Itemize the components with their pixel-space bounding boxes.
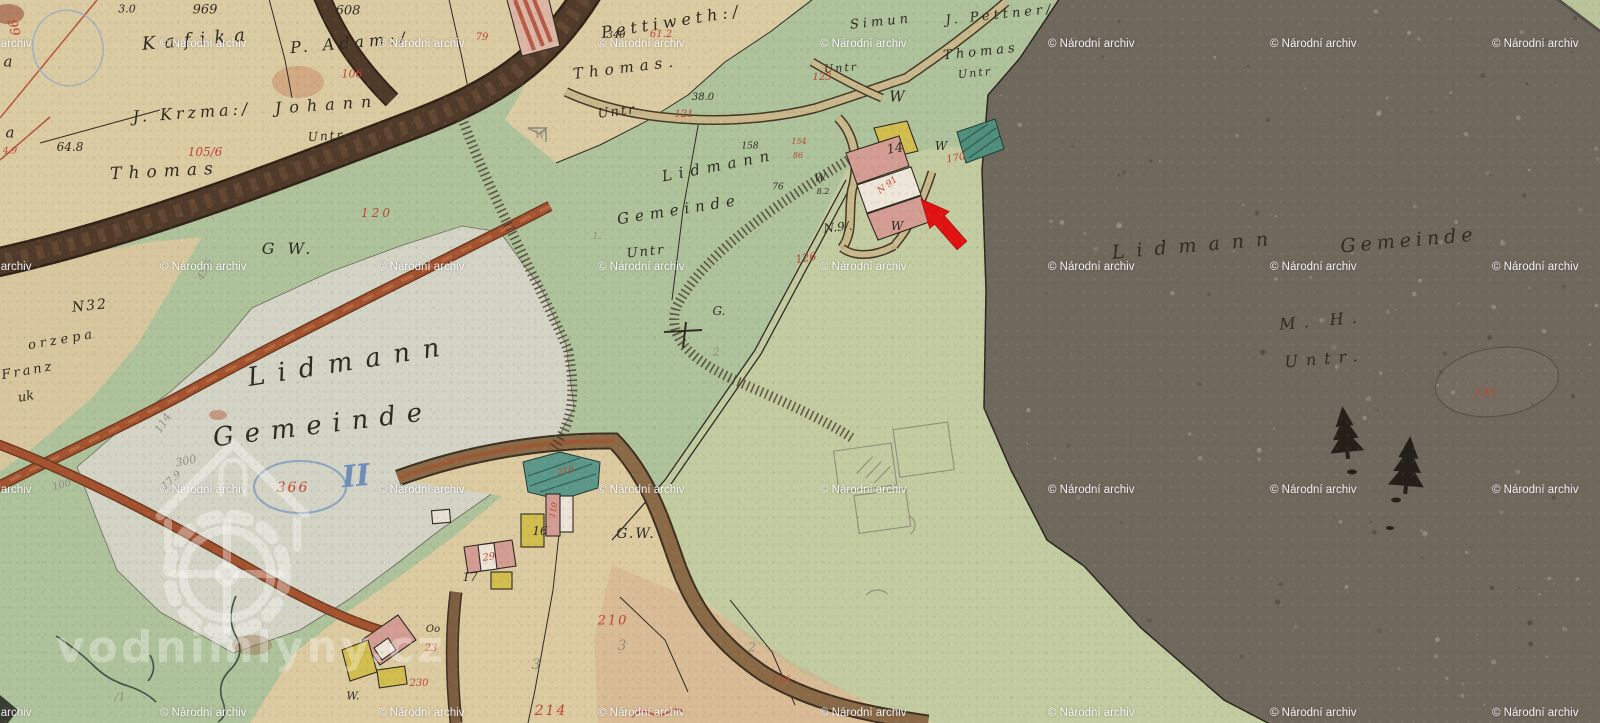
archive-watermark: © Národní archiv [1048,707,1134,719]
archive-watermark: © Národní archiv [0,707,31,719]
archive-watermark: © Národní archiv [820,484,906,496]
archive-watermark: © Národní archiv [1270,484,1356,496]
archive-watermark: © Národní archiv [1270,707,1356,719]
archive-watermark: © Národní archiv [1492,484,1578,496]
map-canvas[interactable]: 9693.0608KafikaP. Adam:/J. Krzma:/Johann… [0,0,1600,723]
archive-watermark: © Národní archiv [160,261,246,273]
archive-watermark: © Národní archiv [160,38,246,50]
archive-watermark: © Národní archiv [378,261,464,273]
archive-watermark: © Národní archiv [598,484,684,496]
archive-watermark: © Národní archiv [0,484,31,496]
logo-watermark-text: vodnimlyny.cz [56,622,446,673]
archive-watermark: © Národní archiv [378,38,464,50]
archive-watermark: © Národní archiv [160,484,246,496]
archive-watermark: © Národní archiv [378,484,464,496]
archive-watermark: © Národní archiv [1270,38,1356,50]
archive-watermark: © Národní archiv [160,707,246,719]
archive-watermark: © Národní archiv [1270,261,1356,273]
archive-watermark: © Národní archiv [1492,261,1578,273]
archive-watermark: © Národní archiv [0,261,31,273]
archive-watermark: © Národní archiv [598,261,684,273]
archive-watermark: © Národní archiv [1048,484,1134,496]
archive-watermark: © Národní archiv [1492,707,1578,719]
archive-watermark: © Národní archiv [378,707,464,719]
archive-watermark: © Národní archiv [820,261,906,273]
watermark-layer: © Národní archiv© Národní archiv© Národn… [0,0,1600,723]
archive-watermark: © Národní archiv [598,707,684,719]
archive-watermark: © Národní archiv [1048,38,1134,50]
archive-watermark: © Národní archiv [0,38,31,50]
archive-watermark: © Národní archiv [1492,38,1578,50]
archive-watermark: © Národní archiv [598,38,684,50]
archive-watermark: © Národní archiv [820,707,906,719]
archive-watermark: © Národní archiv [1048,261,1134,273]
archive-watermark: © Národní archiv [820,38,906,50]
